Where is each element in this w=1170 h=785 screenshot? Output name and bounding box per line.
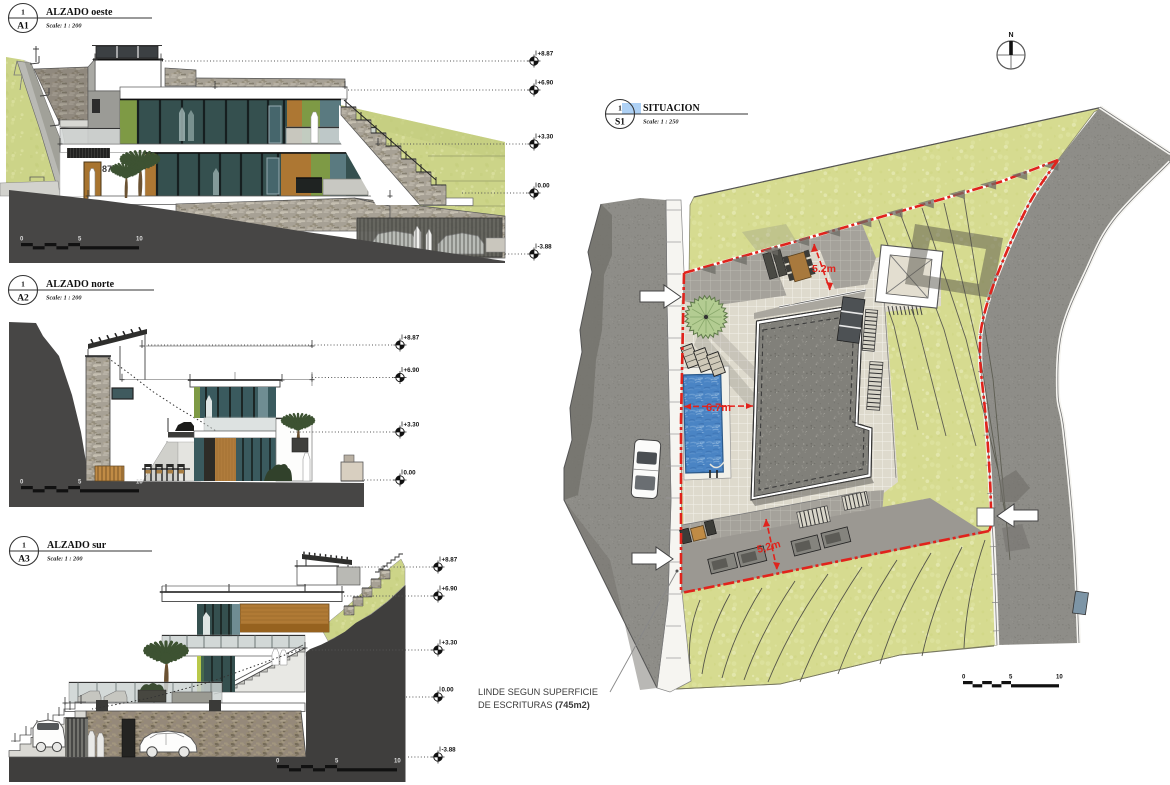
svg-text:ALZADO norte: ALZADO norte [46,279,115,290]
svg-text:1: 1 [618,104,622,113]
svg-text:+3.30: +3.30 [404,422,420,429]
svg-text:0.00: 0.00 [442,687,455,694]
svg-text:0.00: 0.00 [538,183,551,190]
svg-text:A1: A1 [17,22,29,32]
svg-text:+8.87: +8.87 [404,335,420,342]
svg-text:ALZADO oeste: ALZADO oeste [46,7,113,18]
svg-text:+3.30: +3.30 [538,134,554,141]
svg-text:1: 1 [21,280,25,289]
svg-text:LINDE SEGUN SUPERFICIE: LINDE SEGUN SUPERFICIE [478,687,598,697]
svg-text:A3: A3 [18,555,30,565]
svg-text:0.00: 0.00 [404,470,417,477]
svg-text:+3.30: +3.30 [442,640,458,647]
svg-text:10: 10 [1056,675,1063,681]
svg-text:1: 1 [21,8,25,17]
svg-text:10: 10 [394,759,401,765]
svg-text:DE ESCRITURAS (745m2): DE ESCRITURAS (745m2) [478,700,590,710]
svg-text:1: 1 [22,541,26,550]
svg-text:5.2m: 5.2m [812,263,836,275]
svg-text:6.7m: 6.7m [706,402,731,414]
svg-text:Scale: 1 : 200: Scale: 1 : 200 [46,23,82,30]
svg-text:87: 87 [102,164,112,174]
svg-text:+6.90: +6.90 [404,367,420,374]
svg-text:0: 0 [962,675,966,681]
svg-text:-3.88: -3.88 [442,747,457,754]
svg-text:Scale: 1 : 200: Scale: 1 : 200 [47,556,83,563]
svg-text:+6.90: +6.90 [538,80,554,87]
svg-text:+8.87: +8.87 [538,51,554,58]
svg-text:SITUACION: SITUACION [643,103,700,114]
svg-text:S1: S1 [615,118,625,128]
svg-text:ALZADO sur: ALZADO sur [47,540,107,551]
svg-text:A2: A2 [17,294,29,304]
svg-text:5: 5 [1009,675,1013,681]
svg-text:-3.88: -3.88 [538,244,553,251]
svg-text:10: 10 [136,480,143,486]
svg-text:10: 10 [136,237,143,243]
svg-text:+8.87: +8.87 [442,557,458,564]
svg-text:+6.90: +6.90 [442,586,458,593]
svg-text:N: N [1008,32,1013,39]
svg-text:Scale: 1 : 250: Scale: 1 : 250 [643,119,679,126]
svg-text:Scale: 1 : 200: Scale: 1 : 200 [46,295,82,302]
